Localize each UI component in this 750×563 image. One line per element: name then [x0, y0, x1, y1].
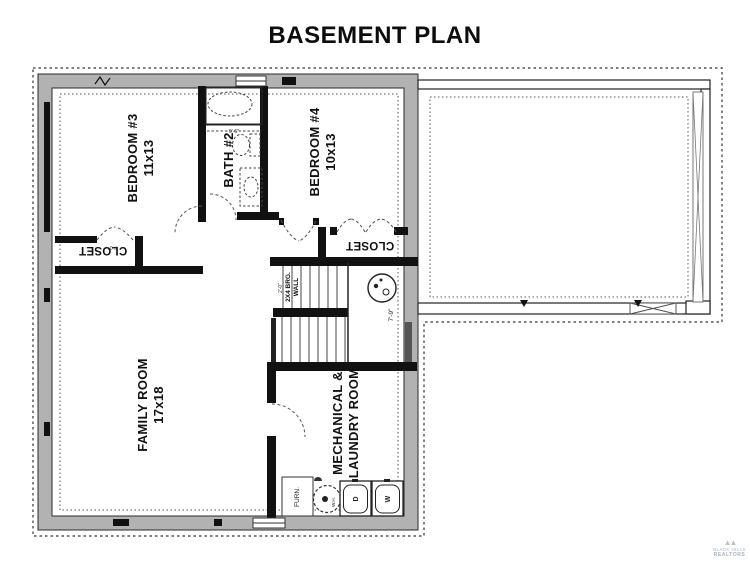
- closet-left-door-1: [97, 227, 114, 240]
- stair-width-dim: 7'-9": [388, 308, 395, 322]
- mechanical-door-arc: [272, 404, 305, 437]
- bedroom3-door-arc: [175, 206, 202, 233]
- logo-line2: REALTORS: [713, 553, 746, 559]
- bath-door-arc: [210, 194, 236, 220]
- floor-plan-page: BASEMENT PLAN: [0, 0, 750, 563]
- closet-left-name: CLOSET: [79, 244, 127, 256]
- mechanical-line1: MECHANICAL &: [330, 371, 345, 475]
- annotation-stair-width: 7'-9": [388, 308, 395, 322]
- bedroom3-name: BEDROOM #3: [125, 114, 140, 203]
- bedroom4-name: BEDROOM #4: [307, 107, 322, 196]
- bearing-wall-line1: 2X4 BRG.: [285, 272, 292, 302]
- closet-right-name: CLOSET: [346, 239, 394, 251]
- annotation-tub-dim: 0'-6": [229, 129, 239, 135]
- bathtub-icon: [206, 87, 262, 125]
- bath2-name: BATH #2: [221, 132, 236, 187]
- annotation-stair-offset: 2'-0": [278, 283, 284, 293]
- closet-left-door-2: [114, 227, 133, 240]
- furnace-label: FURN.: [294, 487, 301, 507]
- tub-dim: 0'-6": [229, 129, 239, 135]
- washer-label: W: [385, 495, 392, 502]
- stair-offset-dim: 2'-0": [278, 283, 284, 293]
- annotation-closet-door: 4'-0": [108, 244, 118, 250]
- mechanical-line2: LAUNDRY ROOM: [346, 368, 361, 479]
- closet-right-door-1: [337, 219, 351, 232]
- bearing-wall-line2: WALL: [293, 278, 300, 296]
- water-heater-label: W.H.: [331, 497, 336, 507]
- room-label-closet-right: CLOSET: [346, 239, 394, 251]
- closet-right-door-3: [366, 219, 381, 232]
- room-label-bedroom3: BEDROOM #3 11x13: [125, 114, 156, 203]
- water-heater-icon: [314, 486, 341, 513]
- right-block-walls: [418, 80, 710, 314]
- closet-right-door-2: [351, 219, 365, 232]
- stair-treads-lower: [282, 317, 345, 362]
- realtor-logo: ▲▲ BLACK HILLS REALTORS: [713, 539, 746, 558]
- bedroom3-size: 11x13: [141, 140, 156, 177]
- floor-drain-icon: [314, 477, 322, 481]
- room-label-bath2: BATH #2: [221, 132, 236, 187]
- family-name: FAMILY ROOM: [135, 358, 150, 452]
- closet-door-dim: 4'-0": [108, 244, 118, 250]
- room-label-closet-left: CLOSET: [79, 244, 127, 256]
- room-label-mechanical: MECHANICAL & LAUNDRY ROOM: [330, 368, 361, 479]
- room-label-family: FAMILY ROOM 17x18: [135, 358, 166, 452]
- dryer-label: D: [353, 496, 360, 501]
- interior-walls: [55, 86, 418, 518]
- bedroom4-size: 10x13: [323, 133, 338, 171]
- toilet-icon: [233, 134, 261, 156]
- insulation-dotted-line-right: [430, 97, 688, 297]
- family-size: 17x18: [151, 386, 166, 424]
- sump-pump-icon: [368, 274, 396, 302]
- floor-plan-svg: BEDROOM #3 11x13 BATH #2 BEDROOM #4 10x1…: [0, 0, 750, 563]
- closet-right-door-4: [381, 219, 396, 232]
- right-block-side-brace: [693, 92, 703, 302]
- room-label-bedroom4: BEDROOM #4 10x13: [307, 107, 338, 196]
- sink-icon: [240, 168, 262, 206]
